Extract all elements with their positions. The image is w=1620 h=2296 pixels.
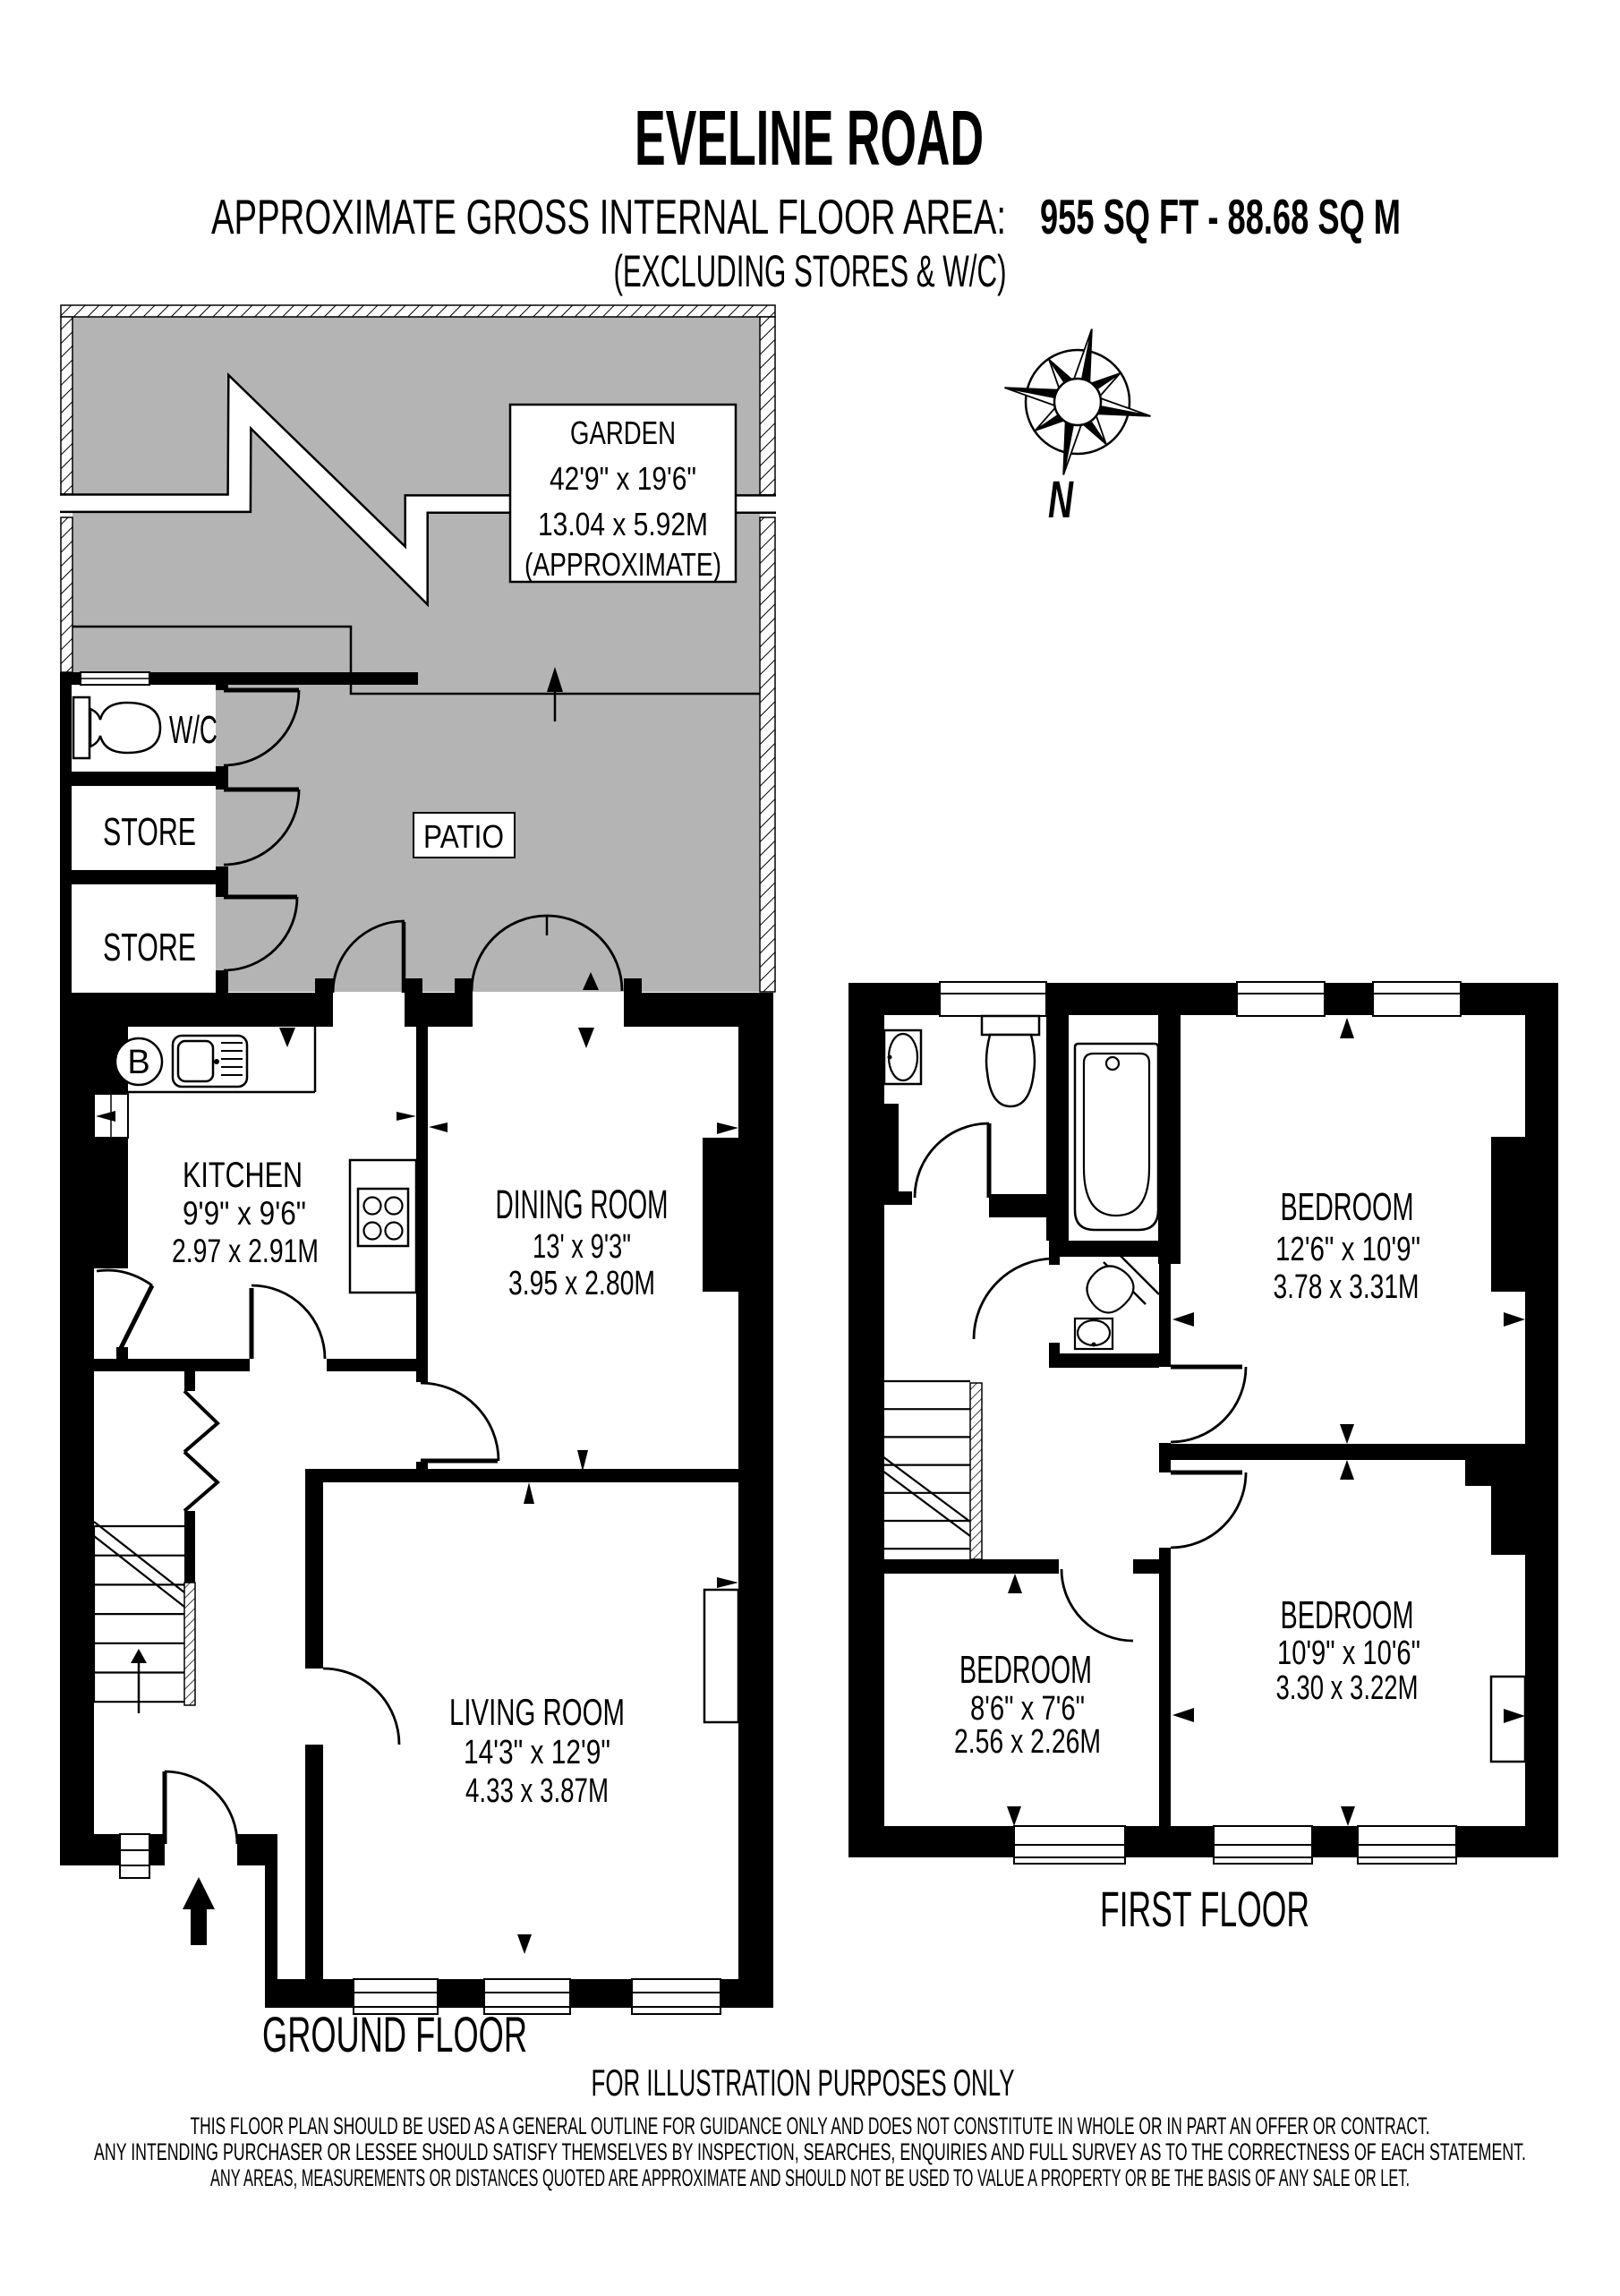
svg-text:THIS FLOOR PLAN SHOULD BE USED: THIS FLOOR PLAN SHOULD BE USED AS A GENE…: [191, 2112, 1430, 2139]
svg-text:ANY AREAS, MEASUREMENTS OR DIS: ANY AREAS, MEASUREMENTS OR DISTANCES QUO…: [210, 2164, 1410, 2191]
svg-text:BEDROOM: BEDROOM: [959, 1648, 1092, 1692]
svg-text:3.30 x 3.22M: 3.30 x 3.22M: [1276, 1669, 1419, 1707]
svg-text:8'6" x 7'6": 8'6" x 7'6": [970, 1690, 1085, 1728]
svg-text:FOR ILLUSTRATION PURPOSES ONLY: FOR ILLUSTRATION PURPOSES ONLY: [592, 2061, 1015, 2104]
svg-text:BEDROOM: BEDROOM: [1281, 1185, 1414, 1229]
svg-text:N: N: [1048, 471, 1074, 529]
svg-text:13.04 x 5.92M: 13.04 x 5.92M: [538, 506, 708, 542]
svg-text:FIRST FLOOR: FIRST FLOOR: [1100, 1881, 1309, 1937]
svg-text:9'9" x 9'6": 9'9" x 9'6": [183, 1195, 306, 1232]
svg-text:W/C: W/C: [169, 708, 217, 752]
svg-text:13' x 9'3": 13' x 9'3": [533, 1228, 631, 1266]
svg-text:APPROXIMATE GROSS INTERNAL FLO: APPROXIMATE GROSS INTERNAL FLOOR AREA:: [211, 189, 1006, 244]
svg-text:GROUND FLOOR: GROUND FLOOR: [262, 2006, 527, 2062]
svg-text:955 SQ FT - 88.68 SQ M: 955 SQ FT - 88.68 SQ M: [1040, 189, 1401, 244]
svg-text:KITCHEN: KITCHEN: [183, 1156, 303, 1195]
svg-text:B: B: [127, 1044, 149, 1081]
svg-text:(EXCLUDING STORES & W/C): (EXCLUDING STORES & W/C): [614, 246, 1007, 296]
svg-text:ANY INTENDING PURCHASER OR LES: ANY INTENDING PURCHASER OR LESSEE SHOULD…: [94, 2138, 1526, 2165]
svg-text:BEDROOM: BEDROOM: [1281, 1593, 1414, 1637]
svg-text:STORE: STORE: [103, 926, 196, 969]
svg-text:PATIO: PATIO: [423, 818, 504, 855]
svg-text:14'3" x 12'9": 14'3" x 12'9": [464, 1734, 610, 1771]
svg-text:42'9" x 19'6": 42'9" x 19'6": [550, 460, 696, 497]
svg-text:(APPROXIMATE): (APPROXIMATE): [524, 546, 721, 583]
svg-text:DINING ROOM: DINING ROOM: [496, 1182, 669, 1227]
svg-text:GARDEN: GARDEN: [570, 414, 676, 451]
svg-text:12'6" x 10'9": 12'6" x 10'9": [1275, 1231, 1420, 1268]
svg-text:10'9" x 10'6": 10'9" x 10'6": [1277, 1635, 1420, 1672]
svg-text:2.97 x 2.91M: 2.97 x 2.91M: [172, 1233, 319, 1269]
svg-text:3.78 x 3.31M: 3.78 x 3.31M: [1274, 1268, 1420, 1306]
svg-text:EVELINE ROAD: EVELINE ROAD: [635, 95, 984, 182]
svg-text:LIVING ROOM: LIVING ROOM: [449, 1691, 625, 1733]
svg-text:4.33 x 3.87M: 4.33 x 3.87M: [465, 1772, 609, 1810]
svg-text:2.56 x 2.26M: 2.56 x 2.26M: [954, 1723, 1101, 1761]
svg-text:STORE: STORE: [103, 810, 196, 854]
svg-text:3.95 x 2.80M: 3.95 x 2.80M: [508, 1265, 655, 1302]
